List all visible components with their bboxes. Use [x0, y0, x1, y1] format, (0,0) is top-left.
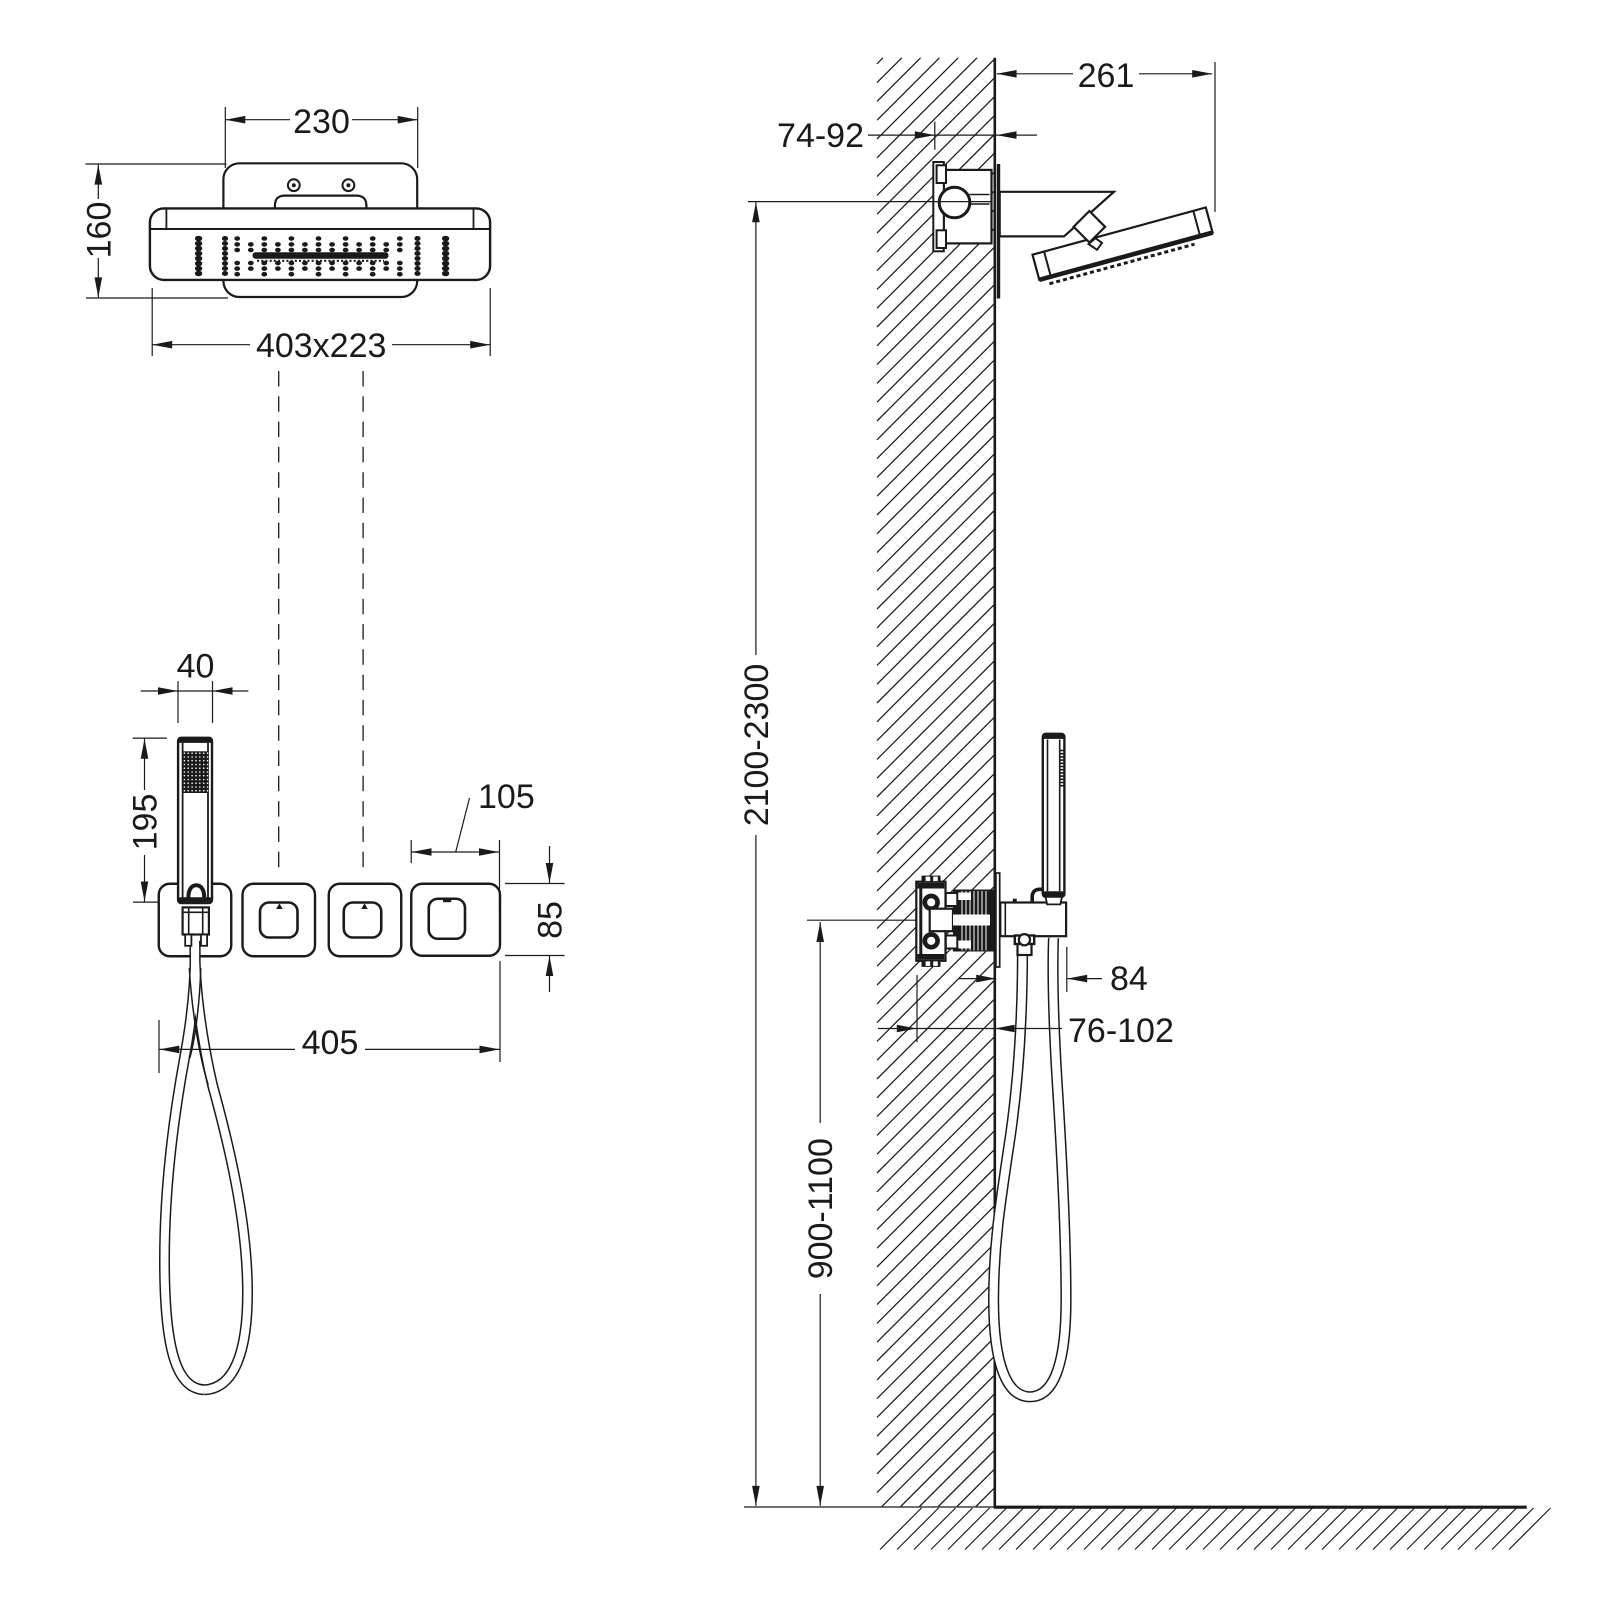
svg-text:405: 405 [302, 1024, 359, 1062]
svg-text:105: 105 [478, 778, 535, 816]
svg-text:230: 230 [293, 103, 350, 141]
svg-text:403x223: 403x223 [256, 327, 386, 365]
svg-text:74-92: 74-92 [777, 117, 864, 155]
svg-text:160: 160 [80, 202, 118, 259]
svg-text:76-102: 76-102 [1068, 1012, 1174, 1050]
svg-text:2100-2300: 2100-2300 [738, 664, 776, 827]
svg-text:85: 85 [532, 901, 570, 939]
svg-text:900-1100: 900-1100 [802, 1138, 840, 1279]
svg-text:40: 40 [177, 648, 215, 686]
svg-text:84: 84 [1110, 960, 1148, 998]
svg-text:195: 195 [127, 794, 165, 851]
svg-text:261: 261 [1078, 57, 1135, 95]
